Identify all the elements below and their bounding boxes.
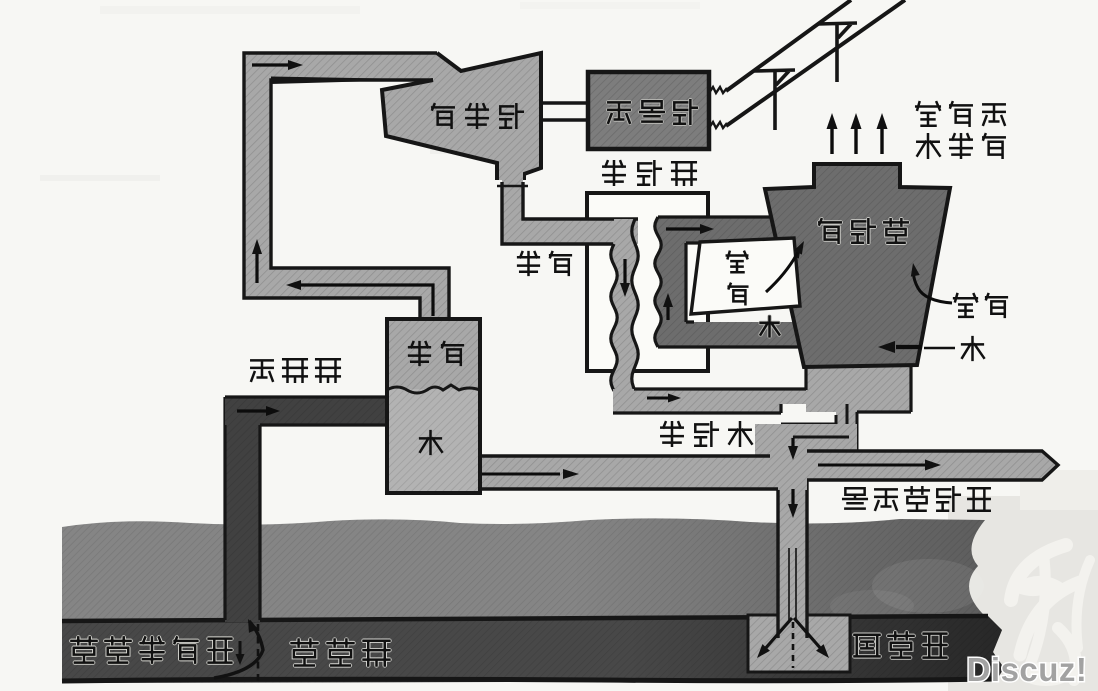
svg-text:Discuz!: Discuz!	[967, 651, 1088, 688]
